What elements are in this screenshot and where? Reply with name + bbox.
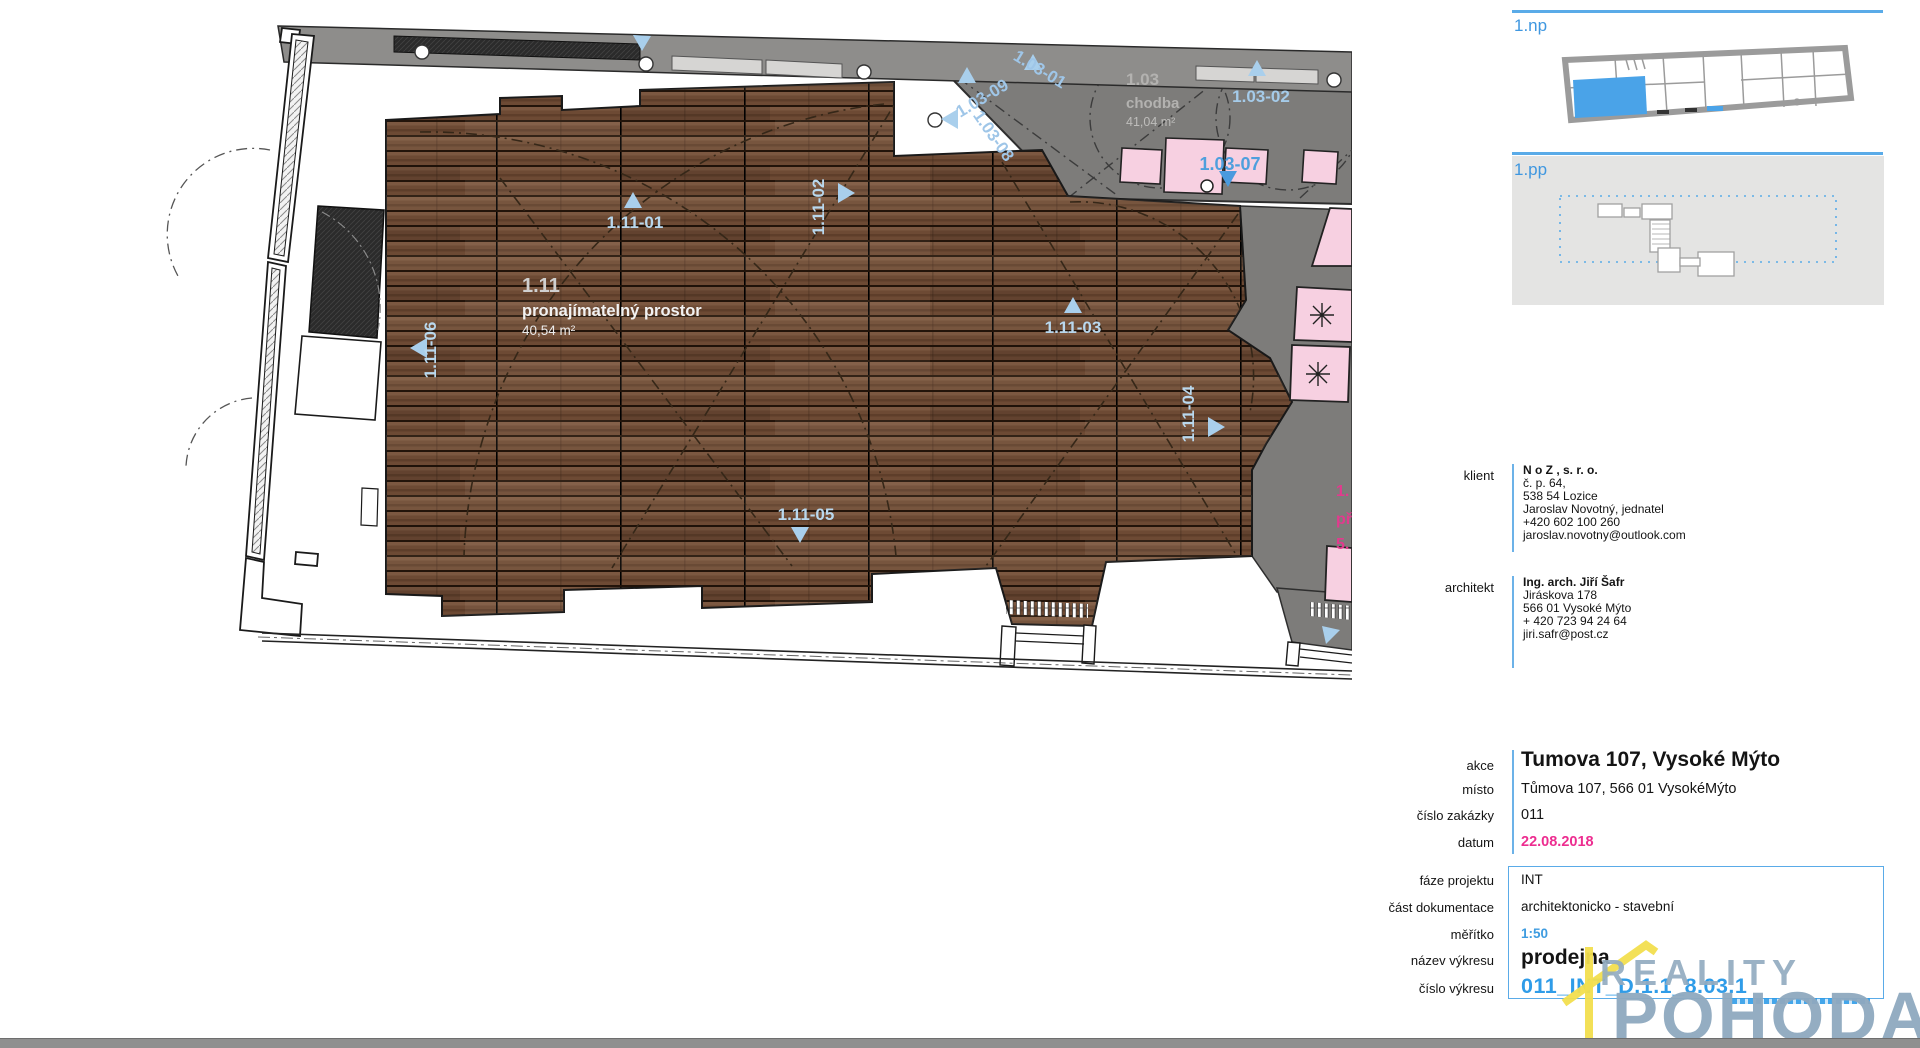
- architekt-name: Ing. arch. Jiří Šafr: [1523, 576, 1631, 589]
- misto-label: místo: [1228, 782, 1494, 797]
- left-door-swings: [167, 148, 270, 466]
- room-label: 1.03-07: [1199, 154, 1260, 174]
- clipped-room-label: př: [1336, 511, 1353, 528]
- np-thumbnail-label: 1.np: [1514, 16, 1547, 36]
- klient-line: 538 54 Lozice: [1523, 490, 1686, 503]
- vestibule-outline: [295, 336, 381, 420]
- meritko-label: měřítko: [1228, 927, 1494, 942]
- architekt-line: 566 01 Vysoké Mýto: [1523, 602, 1631, 615]
- klient-info: N o Z , s. r. o. č. p. 64, 538 54 Lozice…: [1512, 464, 1686, 552]
- akce-label: akce: [1228, 758, 1494, 773]
- main-room-name: pronajímatelný prostor: [522, 302, 702, 320]
- clipped-room-label: 1.: [1336, 483, 1349, 500]
- window-bottom-edge: [0, 1038, 1920, 1048]
- architekt-line: jiri.safr@post.cz: [1523, 628, 1631, 641]
- room-label: 1.03-02: [1232, 87, 1290, 106]
- corridor-name: chodba: [1126, 95, 1180, 112]
- cast-dokumentace-value: architektonicko - stavební: [1521, 899, 1674, 914]
- meritko-value: 1:50: [1521, 926, 1548, 941]
- datum-value: 22.08.2018: [1521, 834, 1594, 850]
- klient-line: č. p. 64,: [1523, 477, 1686, 490]
- architekt-line: Jiráskova 178: [1523, 589, 1631, 602]
- floor-plan-canvas: 1.11-01 1.11-02 1.11-03 1.11-04 1.11-05 …: [0, 0, 1360, 1048]
- facade-window: [1196, 66, 1254, 82]
- architekt-line: + 420 723 94 24 64: [1523, 615, 1631, 628]
- nazev-vykresu-value: prodejna: [1521, 946, 1610, 970]
- room-label: 1.11-05: [778, 505, 835, 524]
- furniture-knob: [1201, 180, 1213, 192]
- klient-name: N o Z , s. r. o.: [1523, 464, 1686, 477]
- klient-line: jaroslav.novotny@outlook.com: [1523, 529, 1686, 542]
- datum-label: datum: [1228, 835, 1494, 850]
- project-separator-line: [1512, 750, 1514, 854]
- corridor-id: 1.03: [1126, 70, 1159, 89]
- entry-mat: [309, 206, 384, 338]
- cast-dokumentace-label: část dokumentace: [1228, 900, 1494, 915]
- clipped-room-label: 5.: [1336, 536, 1349, 553]
- pp-divider-line: [1512, 152, 1883, 155]
- cislo-zakazky-value: 011: [1521, 807, 1544, 823]
- floorplan-thumbnail-pp: [1512, 156, 1884, 305]
- bottom-wall: [258, 633, 1352, 679]
- akce-value: Tumova 107, Vysoké Mýto: [1521, 748, 1780, 772]
- klient-line: Jaroslav Novotný, jednatel: [1523, 503, 1686, 516]
- faze-projektu-value: INT: [1521, 872, 1543, 887]
- room-label: 1.11-01: [607, 213, 664, 232]
- room-label: 1.11-02: [809, 179, 828, 236]
- pp-thumbnail-label: 1.pp: [1514, 160, 1547, 180]
- main-room-area: 40,54 m²: [522, 323, 576, 338]
- cislo-zakazky-label: číslo zakázky: [1228, 808, 1494, 823]
- np-highlighted-room: [1573, 76, 1647, 118]
- corridor-area: 41,04 m²: [1126, 115, 1175, 129]
- np-divider-line: [1512, 10, 1883, 13]
- klient-label: klient: [1228, 468, 1494, 483]
- nazev-vykresu-label: název výkresu: [1228, 953, 1494, 968]
- left-wall: [240, 28, 318, 636]
- architekt-label: architekt: [1228, 580, 1494, 595]
- room-label: 1.11-03: [1045, 318, 1102, 337]
- top-facade-band: [278, 26, 1352, 92]
- misto-value: Tůmova 107, 566 01 VysokéMýto: [1521, 781, 1736, 797]
- cislo-vykresu-value: 011_INT_D.1.1_8.03.1: [1521, 974, 1747, 999]
- room-label: 1.11-06: [421, 322, 440, 379]
- wood-slot: [361, 488, 378, 526]
- room-label: 1.11-04: [1179, 385, 1198, 442]
- drawing-viewer-page: 1.11-01 1.11-02 1.11-03 1.11-04 1.11-05 …: [0, 0, 1920, 1048]
- pp-thumbnail-panel[interactable]: 1.pp: [1512, 156, 1884, 305]
- architekt-info: Ing. arch. Jiří Šafr Jiráskova 178 566 0…: [1512, 576, 1631, 668]
- main-room-id: 1.11: [522, 275, 560, 297]
- faze-projektu-label: fáze projektu: [1228, 873, 1494, 888]
- floorplan-thumbnail-np[interactable]: [1545, 40, 1885, 130]
- cislo-vykresu-label: číslo výkresu: [1228, 981, 1494, 996]
- klient-line: +420 602 100 260: [1523, 516, 1686, 529]
